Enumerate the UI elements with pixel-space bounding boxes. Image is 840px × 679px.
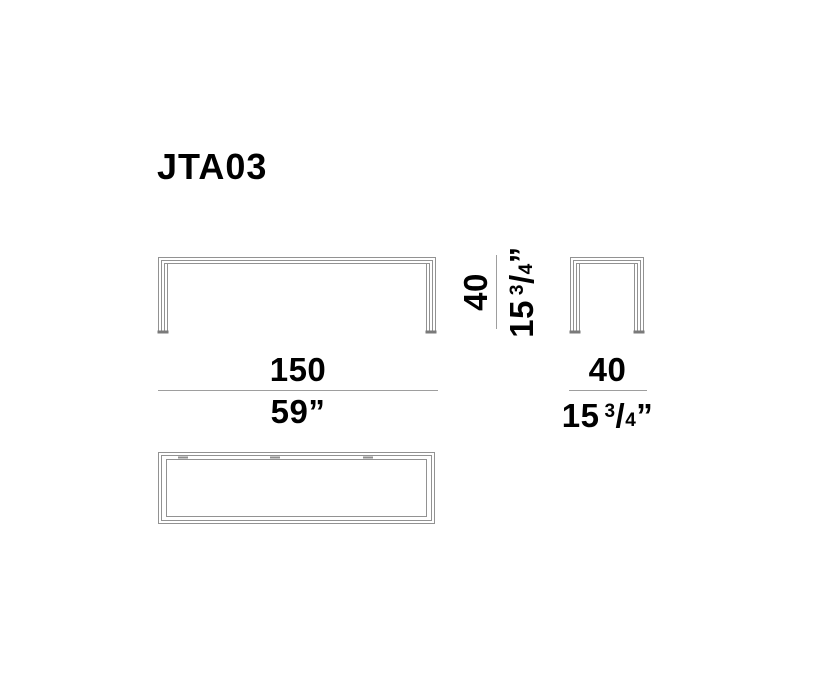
dimension-length: 150 59” — [158, 351, 438, 430]
product-code: JTA03 — [157, 148, 267, 186]
length-cm-value: 150 — [158, 351, 438, 388]
depth-fraction-denominator: 4 — [625, 410, 636, 431]
length-dimension-line — [158, 390, 438, 391]
height-inch-whole: 15 — [503, 300, 540, 338]
height-unit-mark: ” — [503, 246, 540, 263]
side-right-foot — [634, 331, 645, 334]
height-fraction-slash: / — [503, 274, 540, 284]
depth-inch-value: 153/4” — [535, 393, 680, 439]
height-fraction-numerator: 3 — [507, 284, 528, 295]
dimension-depth: 40 153/4” — [535, 351, 680, 439]
depth-fraction-slash: / — [616, 397, 626, 434]
depth-cm-value: 40 — [535, 351, 680, 388]
depth-inch-whole: 15 — [562, 397, 600, 434]
length-inch-value: 59” — [158, 393, 438, 430]
depth-dimension-line — [569, 390, 647, 391]
front-view-drawing — [155, 252, 440, 336]
height-inch-value: 153/4” — [499, 234, 545, 350]
depth-unit-mark: ” — [636, 397, 653, 434]
top-view-drawing — [153, 448, 443, 528]
side-view-drawing — [567, 252, 647, 336]
front-left-foot — [158, 331, 169, 334]
height-fraction-denominator: 4 — [516, 263, 537, 274]
spec-sheet: JTA03 — [0, 0, 840, 679]
front-right-foot — [426, 331, 437, 334]
depth-fraction-numerator: 3 — [604, 401, 615, 422]
height-dimension-line — [496, 255, 497, 329]
dimension-height: 40 153/4” — [457, 234, 535, 350]
side-left-foot — [570, 331, 581, 334]
height-cm-value: 40 — [457, 234, 494, 350]
